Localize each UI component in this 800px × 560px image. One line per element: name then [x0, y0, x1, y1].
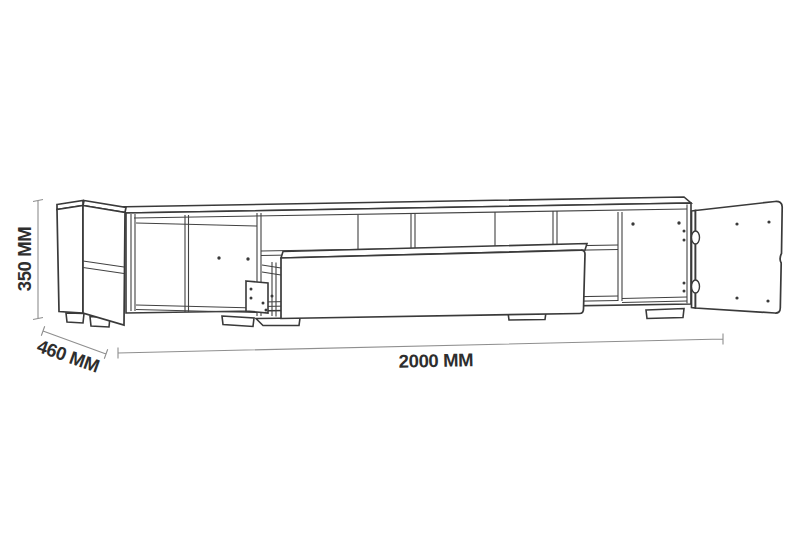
width-dimension-label: 2000 MM	[398, 349, 473, 372]
drawer-slide-bracket	[246, 281, 268, 313]
fitting-dot	[271, 295, 274, 298]
depth-dimension: 460 MM	[34, 326, 107, 376]
hinge-icon	[692, 231, 700, 244]
height-dimension: 350 MM	[14, 200, 43, 320]
left-door-open	[57, 201, 126, 326]
left-door-inner-panel	[83, 206, 125, 326]
technical-drawing-canvas: 350 MM 460 MM 2000 MM	[0, 0, 800, 560]
fitting-dot	[265, 309, 268, 312]
fitting-dot	[262, 302, 265, 305]
left-door-outer-panel	[57, 206, 83, 314]
pin-hole	[246, 257, 249, 260]
pin-hole	[631, 222, 634, 225]
hinge-screw-dot	[683, 290, 686, 293]
fitting-dot	[735, 296, 738, 299]
right-door-panel	[696, 201, 783, 313]
pin-hole	[677, 221, 680, 224]
height-dimension-label: 350 MM	[14, 227, 35, 291]
width-dimension: 2000 MM	[118, 334, 723, 372]
fitting-dot	[250, 297, 253, 300]
drawer-open	[246, 244, 587, 326]
drawer-front-panel	[281, 250, 585, 318]
fitting-dot	[250, 288, 253, 291]
hinge-screw-dot	[683, 282, 686, 285]
hinge-icon	[692, 280, 700, 293]
hinge-screw-dot	[683, 239, 686, 242]
pin-hole	[217, 256, 220, 259]
right-door-open	[692, 201, 783, 313]
furniture-line-drawing: 350 MM 460 MM 2000 MM	[0, 0, 800, 560]
fitting-dot	[766, 299, 769, 302]
depth-dimension-label: 460 MM	[34, 335, 102, 376]
hinge-screw-dot	[683, 230, 686, 233]
fitting-dot	[735, 222, 738, 225]
fitting-dot	[767, 220, 770, 223]
